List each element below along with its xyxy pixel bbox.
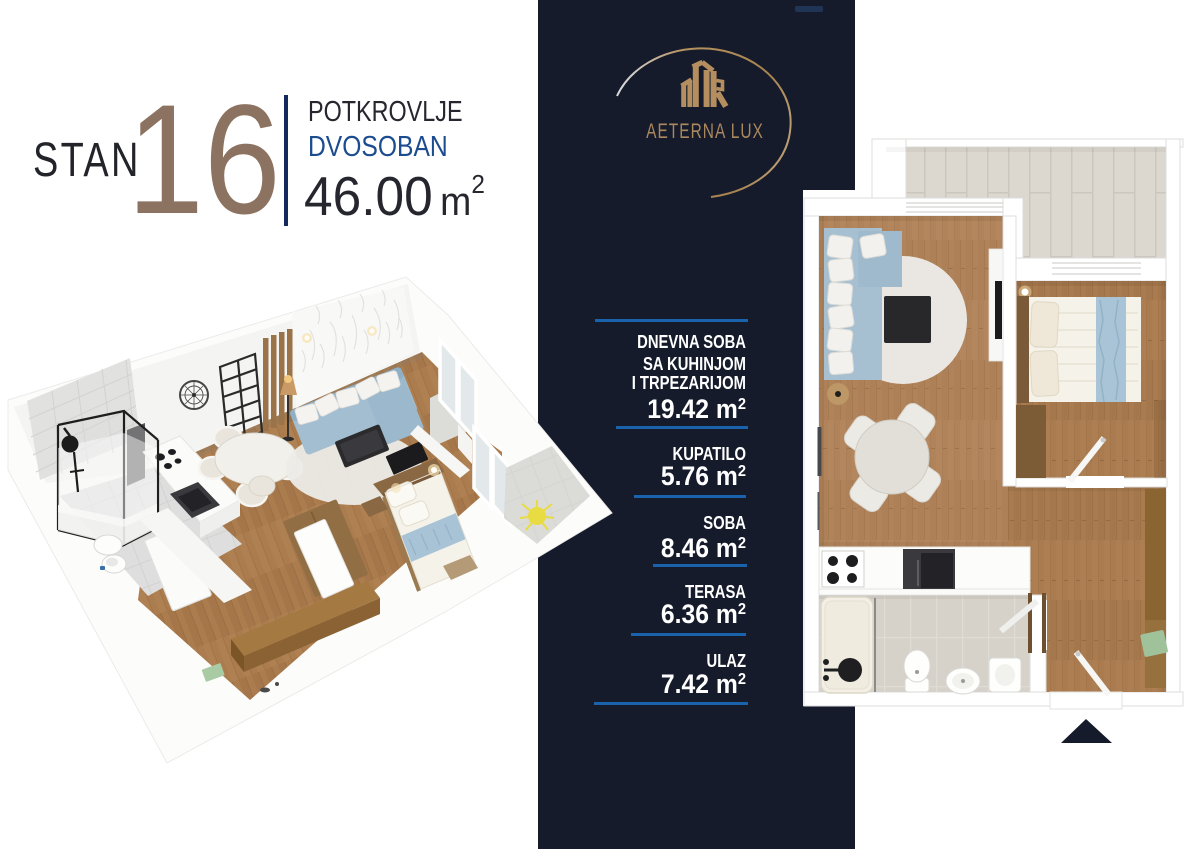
svg-text:AETERNA LUX: AETERNA LUX — [646, 118, 764, 142]
